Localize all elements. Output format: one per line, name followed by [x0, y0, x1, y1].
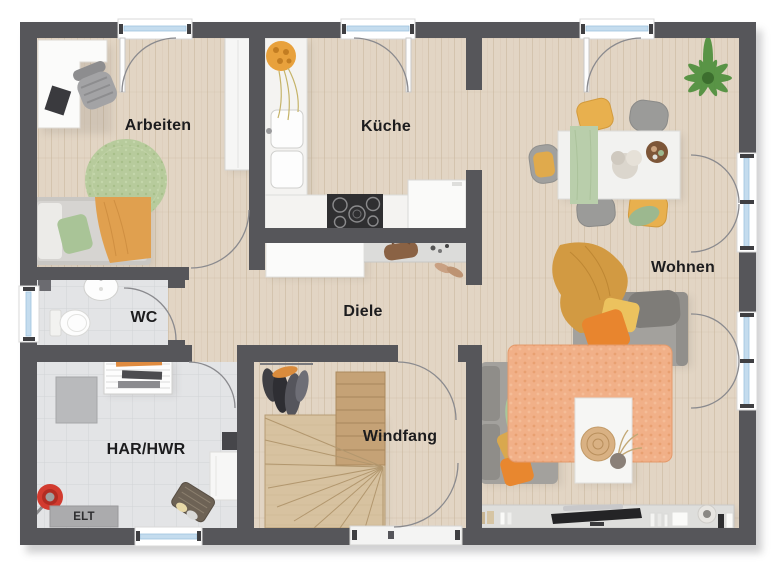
wall-windfang-northeast: [458, 345, 482, 362]
white-pillow: [38, 203, 62, 259]
tv-bench: [470, 504, 734, 528]
wall-wc-har: [20, 345, 192, 362]
room-label-diele: Diele: [343, 303, 382, 321]
drying-rack: [104, 358, 172, 394]
seat-cushion: [532, 151, 555, 179]
wall-diele-wohnen: [466, 170, 482, 285]
room-label-wc: WC: [130, 309, 157, 327]
window-wc: [19, 286, 39, 342]
sink-basin: [271, 110, 303, 148]
sideboard: [266, 240, 364, 277]
fridge-handle: [452, 182, 462, 186]
window-har: [135, 527, 202, 546]
room-label-windfang: Windfang: [363, 428, 437, 446]
wall-wc-diele-post: [168, 280, 185, 288]
clothes-dark: [122, 370, 162, 379]
wall-windfang-north: [237, 345, 398, 362]
coffee-table: [575, 398, 642, 483]
floor-plan-drawing: [0, 0, 775, 571]
daybed: [33, 197, 151, 265]
room-label-har-hwr: HAR/HWR: [107, 441, 186, 459]
stove: [327, 194, 383, 232]
room-label-kueche: Küche: [361, 118, 411, 136]
floor-plan-image: Arbeiten Küche Wohnen WC Diele HAR/HWR W…: [0, 0, 775, 571]
dryer: [210, 452, 238, 500]
room-label-elt: ELT: [73, 511, 94, 523]
sink-basin-2: [271, 151, 303, 188]
toilet: [50, 310, 90, 336]
clothes-grey: [118, 381, 160, 388]
table-runner: [570, 126, 598, 204]
wall-har-windfang: [237, 362, 254, 528]
wall-kueche-wohnen-stub: [466, 38, 482, 90]
fridge: [408, 180, 466, 232]
wall-unit: [222, 432, 238, 450]
wall-windfang-wohnen: [466, 348, 482, 528]
casement-leaf: [406, 38, 411, 92]
wall-wc-diele-post2: [168, 340, 185, 345]
fruit-bowl: [646, 141, 668, 163]
wall-kueche-diele: [249, 228, 482, 243]
wall-arbeiten-wc: [37, 267, 189, 280]
room-label-wohnen: Wohnen: [651, 259, 715, 277]
faucet: [266, 128, 272, 134]
room-label-arbeiten: Arbeiten: [125, 117, 192, 135]
casement-leaf: [584, 38, 589, 92]
washing-machine: [56, 377, 97, 423]
